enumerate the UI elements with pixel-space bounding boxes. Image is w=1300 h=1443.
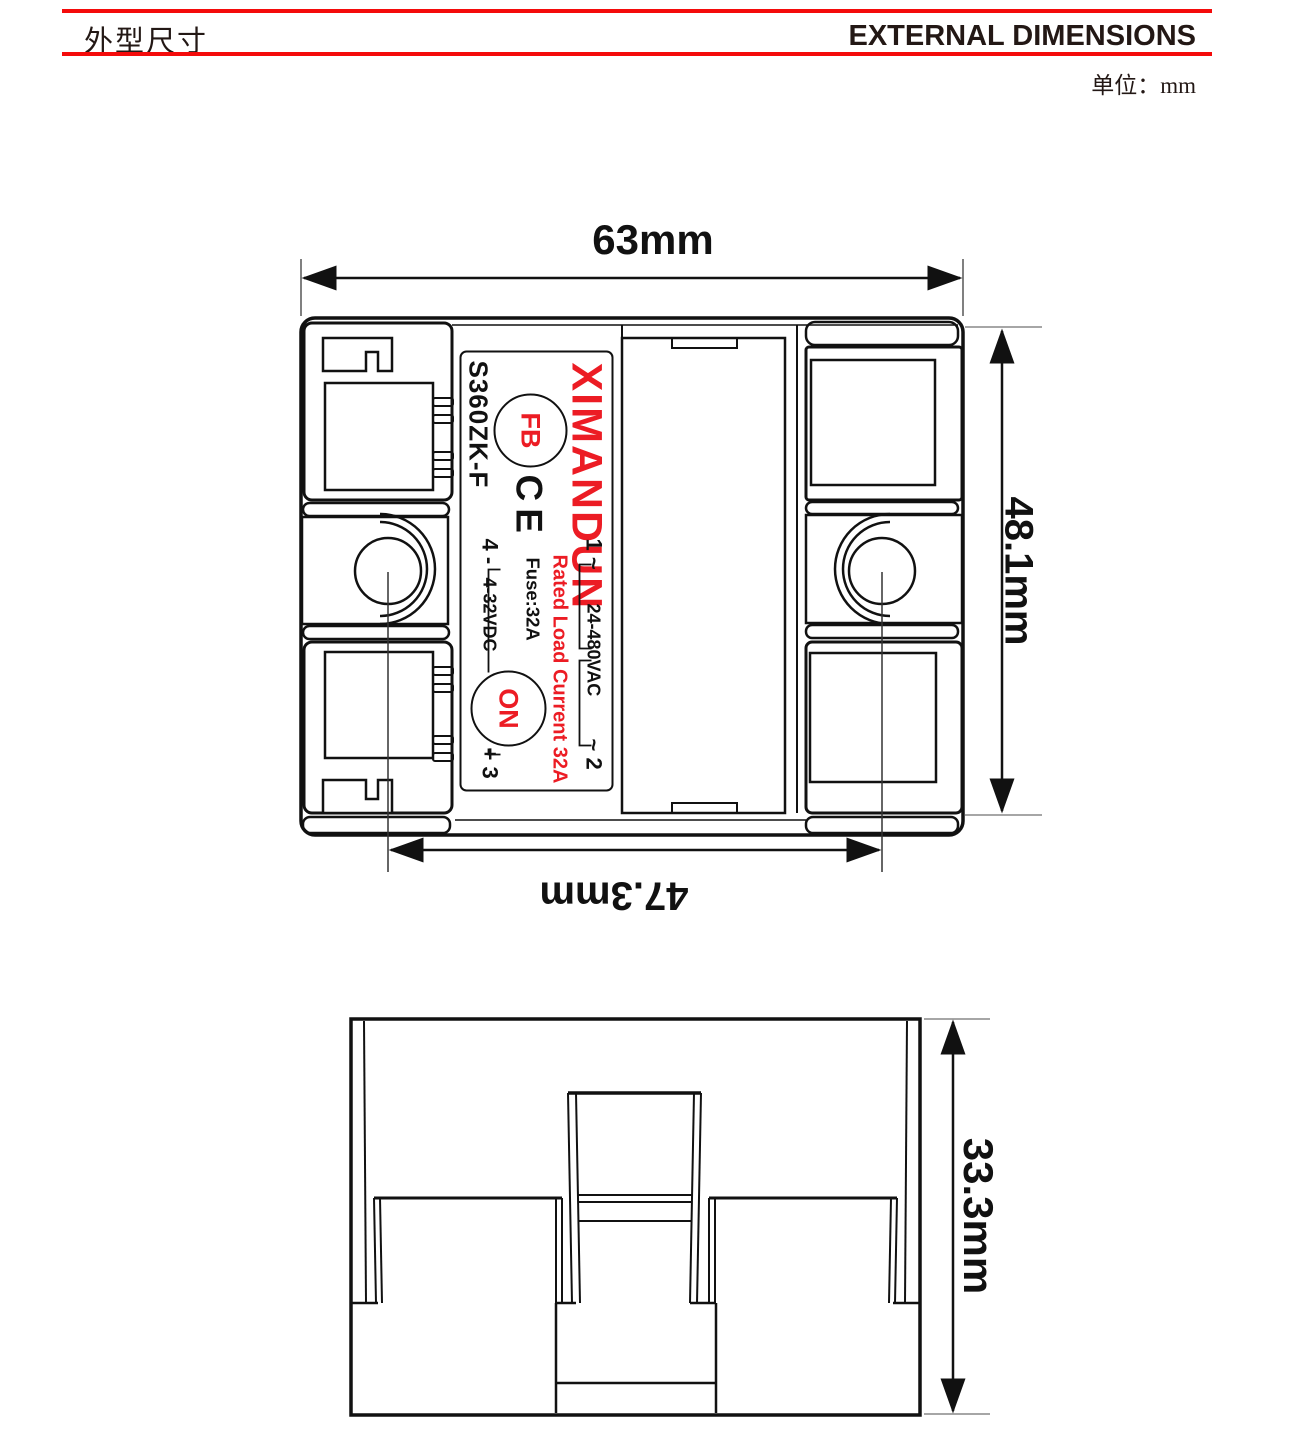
on-indicator-text: ON	[493, 688, 524, 729]
technical-drawing: 63mm 48.1mm 47.3mm	[0, 0, 1300, 1443]
side-body-outline	[351, 1019, 920, 1415]
dimension-profile-height-label: 33.3mm	[955, 1138, 1002, 1294]
dimension-height-label: 48.1mm	[996, 497, 1040, 646]
on-indicator-badge: ON	[470, 670, 546, 746]
side-view	[351, 1019, 920, 1415]
dimension-profile-height: 33.3mm	[924, 1019, 1002, 1414]
top-view	[301, 318, 963, 835]
dimension-width: 63mm	[301, 216, 963, 316]
dimension-hole-spacing-label: 47.3mm	[540, 873, 689, 917]
dimension-height: 48.1mm	[965, 327, 1042, 815]
mounting-notch-bottom-left	[323, 780, 392, 813]
page: 外型尺寸 EXTERNAL DIMENSIONS 单位：mm	[0, 0, 1300, 1443]
dimension-width-label: 63mm	[592, 216, 713, 263]
mounting-notch-top-left	[323, 338, 392, 371]
product-label: XIMANDUN S360ZK-F FB CE 1 ~ 24-480VAC ~ …	[459, 350, 613, 791]
